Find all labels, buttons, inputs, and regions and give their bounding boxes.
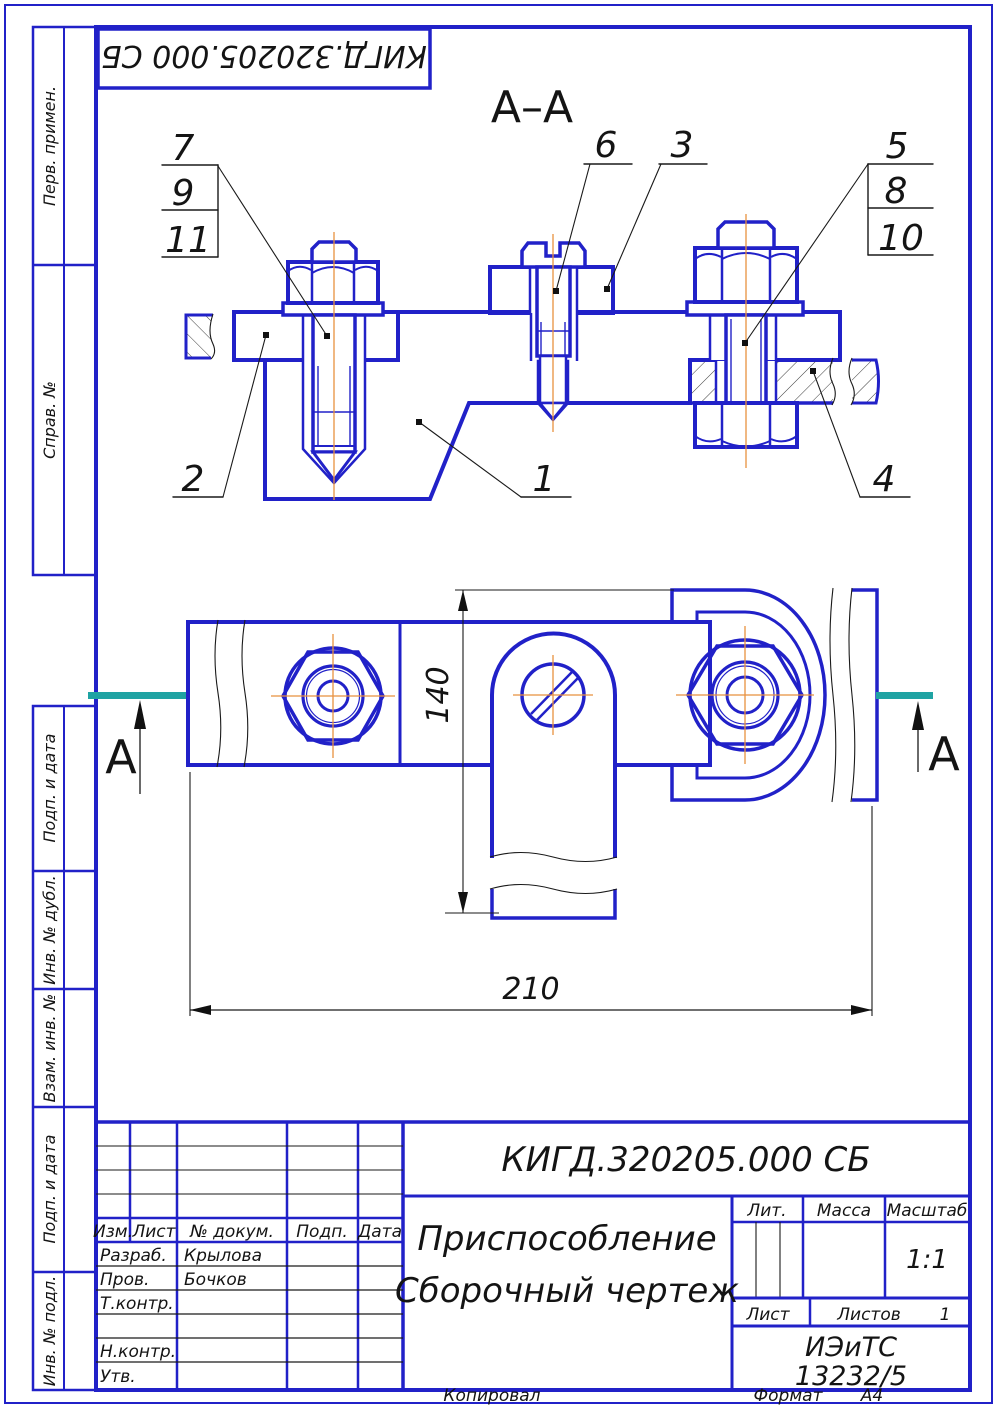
tb-sheets-label: Листов — [836, 1305, 901, 1325]
plan-right-break — [830, 588, 877, 802]
row-prov-name: Бочков — [184, 1270, 247, 1290]
margin-label-podp-i-data-2: Подп. и дата — [40, 1135, 59, 1244]
tb-designation: КИГД.320205.000 СБ — [501, 1140, 870, 1180]
callout-3: 3 — [604, 125, 707, 292]
section-letter-right: А — [928, 727, 960, 781]
section-view-title: А–А — [491, 82, 573, 133]
callout-1-label: 1 — [533, 459, 556, 500]
callout-3-label: 3 — [671, 125, 694, 166]
callout-6-label: 6 — [595, 125, 618, 166]
callout-4-label: 4 — [873, 459, 896, 500]
tb-mass-label: Масса — [817, 1201, 871, 1221]
top-designation-stamp: КИГД.320205.000 СБ — [98, 29, 430, 88]
col-izm: Изм. — [93, 1222, 133, 1242]
margin-label-vzam-inv-no: Взам. инв. № — [40, 994, 59, 1103]
callout-10: 10 — [878, 218, 924, 259]
margin-label-sprav-no: Справ. № — [40, 381, 59, 459]
margin-label-inv-no-dubl: Инв. № дубл. — [40, 875, 59, 984]
callout-9: 9 — [172, 173, 195, 214]
footer-format-label: Формат — [754, 1386, 824, 1406]
section-letter-left: А — [105, 730, 137, 784]
callout-5: 5 — [886, 126, 909, 167]
tb-org-line1: ИЭиТС — [805, 1332, 897, 1363]
row-tkontr-role: Т.контр. — [100, 1294, 174, 1314]
row-utv-role: Утв. — [100, 1367, 136, 1387]
stamp-designation-text: КИГД.320205.000 СБ — [101, 38, 427, 73]
tb-sheet-label: Лист — [745, 1305, 790, 1325]
title-block: Изм. Лист № докум. Подп. Дата Разраб. Кр… — [93, 1122, 970, 1406]
plan-bracket — [490, 634, 617, 919]
col-doc: № докум. — [189, 1222, 274, 1242]
col-sign: Подп. — [296, 1222, 347, 1242]
footer-format-value: А4 — [860, 1386, 883, 1406]
footer-copied: Копировал — [443, 1386, 540, 1406]
row-nkontr-role: Н.контр. — [100, 1342, 176, 1362]
callout-1: 1 — [416, 419, 571, 500]
tb-scale-label: Масштаб — [887, 1201, 968, 1221]
tb-lit-label: Лит. — [746, 1201, 786, 1221]
margin-label-podp-i-data-1: Подп. и дата — [40, 734, 59, 843]
gost-assembly-drawing: Перв. примен. Справ. № Подп. и дата Инв.… — [0, 0, 997, 1408]
margin-label-inv-no-podl: Инв. № подл. — [40, 1276, 59, 1386]
callout-2-label: 2 — [182, 459, 205, 500]
margin-label-perv-primen: Перв. примен. — [40, 86, 59, 206]
dim-210-text: 210 — [502, 972, 559, 1007]
callout-11: 11 — [165, 220, 211, 261]
col-date: Дата — [357, 1222, 402, 1242]
row-razrab-role: Разраб. — [100, 1246, 167, 1266]
support-bar-fragment — [852, 360, 877, 403]
callout-7: 7 — [172, 128, 195, 169]
title-block-right: КИГД.320205.000 СБ Приспособление Сбороч… — [395, 1140, 970, 1392]
dim-140-text: 140 — [421, 666, 456, 723]
callout-8: 8 — [885, 171, 908, 212]
drawing-sheet: Перв. примен. Справ. № Подп. и дата Инв.… — [0, 0, 997, 1408]
tb-name-line1: Приспособление — [417, 1219, 716, 1259]
plan-view: А А 140 210 — [88, 588, 960, 1016]
row-prov-role: Пров. — [100, 1270, 149, 1290]
left-margin-columns: Перв. примен. Справ. № Подп. и дата Инв.… — [33, 27, 96, 1390]
title-block-left-table: Изм. Лист № докум. Подп. Дата Разраб. Кр… — [93, 1122, 403, 1390]
col-sheet: Лист — [131, 1222, 176, 1242]
stud-assembly — [283, 232, 383, 500]
row-razrab-name: Крылова — [184, 1246, 262, 1266]
tb-name-line2: Сборочный чертеж — [395, 1271, 739, 1311]
tb-sheets-value: 1 — [940, 1305, 951, 1325]
section-view: А–А — [162, 82, 933, 500]
tb-scale-value: 1:1 — [906, 1245, 948, 1275]
